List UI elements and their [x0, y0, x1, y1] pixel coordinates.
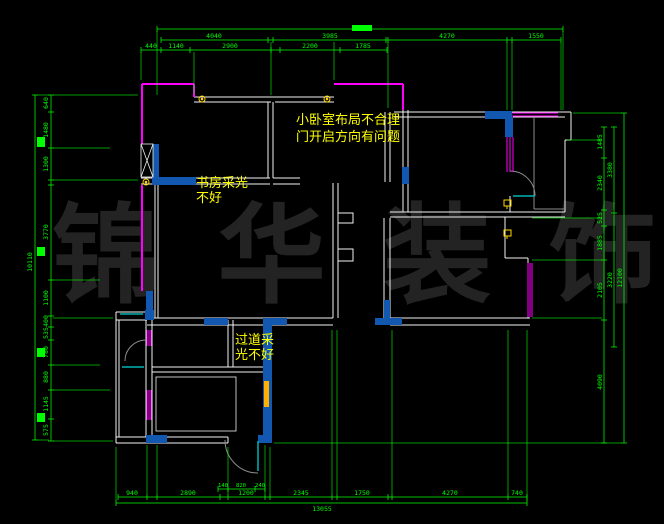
- dim-value: 400: [42, 315, 50, 327]
- blue-seg: [146, 435, 167, 443]
- dim-value: 4270: [442, 489, 458, 497]
- dim-value: 3380: [606, 162, 614, 178]
- dim-value: 1750: [354, 489, 370, 497]
- dim-value: 3220: [606, 272, 614, 288]
- blue-seg: [375, 318, 402, 325]
- dim-value: 1480: [42, 122, 50, 138]
- dim-value: 240: [255, 483, 265, 489]
- dim-value: 640: [42, 97, 50, 109]
- dim-total-right: 12100: [616, 268, 624, 288]
- blue-seg: [145, 310, 154, 320]
- dim-value: 2200: [302, 42, 318, 50]
- dim-value: 2900: [222, 42, 238, 50]
- dim-value: 525: [596, 212, 604, 224]
- dim-value: 1885: [596, 235, 604, 251]
- dim-value: 3770: [42, 224, 50, 240]
- note-corridor-line1: 过道采: [235, 333, 274, 348]
- note-study-line1: 书房采光: [196, 175, 248, 191]
- dim-value: 1100: [42, 290, 50, 306]
- dim-value: 3985: [322, 32, 338, 40]
- dim-value: 140: [218, 483, 228, 489]
- dim-value: 575: [42, 424, 50, 436]
- dim-value: 1785: [355, 42, 371, 50]
- dim-value: 1300: [42, 156, 50, 172]
- dim-value: 1200: [238, 489, 254, 497]
- watermark-text: 锦 华 装 饰: [52, 194, 664, 319]
- dim-value: 2340: [596, 175, 604, 191]
- blue-seg: [402, 167, 409, 184]
- dim-value: 1550: [528, 32, 544, 40]
- note-small-bedroom-line2: 门开启方向有问题: [296, 129, 400, 145]
- dim-value: 4090: [596, 374, 604, 390]
- dim-value: 2890: [180, 489, 196, 497]
- blue-seg: [204, 318, 228, 325]
- blue-seg: [505, 117, 513, 137]
- dim-total-left: 10110: [26, 252, 34, 272]
- dim-value: 880: [42, 371, 50, 383]
- corridor-orange-bar: [264, 381, 269, 407]
- dim-value: 440: [145, 42, 157, 50]
- note-study-line2: 不好: [196, 191, 222, 206]
- dim-total-bottom: 13055: [312, 505, 332, 513]
- dim-value: 940: [126, 489, 138, 497]
- dim-value: 740: [511, 489, 523, 497]
- dim-value: 535: [42, 327, 50, 339]
- note-small-bedroom-line1: 小卧室布局不合理: [296, 112, 400, 128]
- dim-value: 1140: [168, 42, 184, 50]
- dim-value: 780: [42, 346, 50, 358]
- note-corridor-line2: 光不好: [235, 348, 274, 363]
- dim-value: 2345: [293, 489, 309, 497]
- blue-seg: [384, 300, 390, 318]
- dim-value: 2105: [596, 282, 604, 298]
- dim-value: 1145: [42, 396, 50, 412]
- floor-plan-drawing: 锦 华 装 饰: [0, 0, 664, 524]
- dim-value: 820: [236, 483, 246, 489]
- dim-value: 4040: [206, 32, 222, 40]
- dim-value: 1485: [596, 134, 604, 150]
- blue-seg: [153, 144, 159, 183]
- dim-value: 4270: [439, 32, 455, 40]
- cad-canvas: 锦 华 装 饰: [0, 0, 664, 524]
